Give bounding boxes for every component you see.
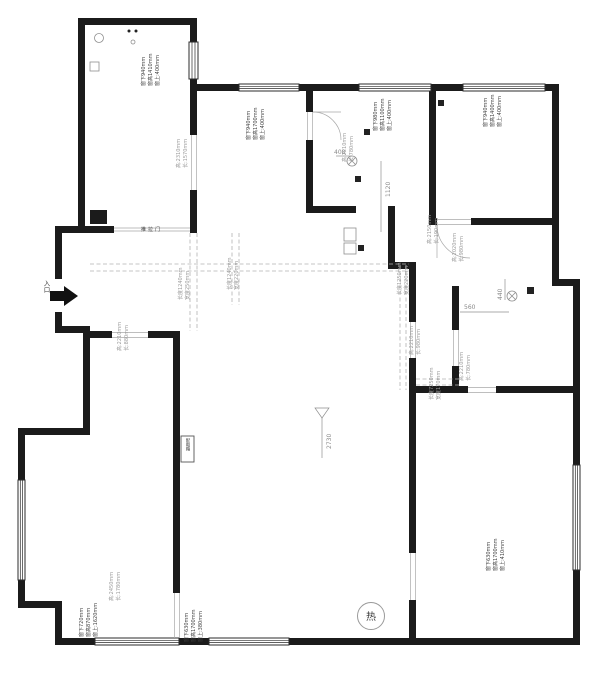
window: [239, 84, 299, 91]
wall-segment: [83, 326, 90, 435]
wall-segment: [18, 428, 90, 435]
window-label: 窗上:400mm: [496, 96, 503, 127]
ceiling-lamp: [95, 34, 104, 43]
wall-segment: [471, 218, 559, 225]
wall-segment: [409, 358, 416, 393]
window-label: 窗上:400mm: [259, 109, 266, 140]
wall-segment: [55, 226, 62, 279]
wall-segment: [409, 600, 416, 638]
beam-label: 宽度220mm: [403, 266, 410, 295]
window-label: 窗上:400mm: [386, 100, 393, 131]
wall-segment: [306, 91, 313, 112]
opening-label: 高:2450mm: [108, 572, 115, 601]
opening-label: 高:2020mm: [451, 233, 458, 262]
window-label: 窗下940mm: [482, 98, 489, 127]
opening-label: 长:1570mm: [182, 139, 189, 168]
window-label: 窗高1400mm: [489, 94, 496, 127]
window-label: 窗高870mm: [85, 608, 92, 637]
pipe-riser: [355, 176, 361, 182]
wall-fixture: [90, 62, 99, 71]
window-label: 窗高1700mm: [190, 609, 197, 642]
opening-label: 长:980mm: [415, 329, 422, 355]
opening-label: 高:2210mm: [116, 322, 123, 351]
sliding-door-label: 推拉门: [141, 226, 162, 233]
window-label: 窗上:410mm: [499, 540, 506, 571]
window-label: 窗下940mm: [245, 111, 252, 140]
opening-label: 长:780mm: [348, 136, 355, 162]
opening-label: 高:2210mm: [408, 326, 415, 355]
wall-segment: [306, 140, 313, 213]
window: [573, 465, 580, 570]
wall-segment: [409, 393, 416, 553]
dim-value: 408: [334, 149, 346, 156]
window: [463, 84, 545, 91]
wall-segment: [496, 386, 580, 393]
wall-segment: [452, 366, 459, 393]
beam-label: 宽度220mm: [233, 261, 240, 290]
wall-segment: [289, 638, 580, 645]
wall-segment: [431, 84, 463, 91]
floor-plan-drawing: 窗上:400mm 窗高1410mm 窗下940mm 窗上:400mm 窗高170…: [0, 0, 600, 687]
opening-label: 长:1780mm: [115, 572, 122, 601]
wall-segment: [173, 331, 180, 593]
pipe-riser: [358, 245, 364, 251]
level-marker: [315, 408, 329, 458]
wall-segment: [452, 286, 459, 330]
pipe-riser: [364, 129, 370, 135]
window-label: 窗高1410mm: [147, 53, 154, 86]
window-label: 窗上:380mm: [197, 611, 204, 642]
window-label: 窗下940mm: [140, 57, 147, 86]
window: [189, 42, 198, 79]
window-label: 窗下630mm: [183, 613, 190, 642]
window-label: 窗高1700mm: [492, 538, 499, 571]
opening-label: 长:880mm: [123, 325, 130, 351]
beam-label: 宽度250mm: [184, 271, 191, 300]
window: [209, 638, 289, 645]
opening-label: 长:980mm: [458, 236, 465, 262]
beam-label: 长度1240mm: [177, 267, 184, 300]
opening-label: 高:2150mm: [426, 215, 433, 244]
wall-segment: [190, 18, 197, 42]
opening-label: 长:190mm: [433, 218, 440, 244]
beam-label: 宽度170mm: [435, 371, 442, 400]
dim-value: 1120: [385, 182, 392, 197]
wall-segment: [573, 279, 580, 645]
opening-label: 高:2210mm: [341, 133, 348, 162]
heater-label: 热: [366, 610, 376, 623]
wall-segment: [429, 91, 436, 225]
window: [359, 84, 431, 91]
beam-label: 长度7250mm: [428, 367, 435, 400]
spot-dot: [128, 30, 131, 33]
dim-value: 560: [464, 304, 476, 311]
window-label: 窗上:400mm: [154, 55, 161, 86]
entrance-label: 入口: [42, 280, 50, 293]
spot-dot: [135, 30, 138, 33]
door-swing: [313, 112, 341, 140]
dim-value: 440: [497, 288, 504, 300]
wall-segment: [78, 18, 85, 233]
wall-segment: [388, 206, 395, 269]
window-label: 窗下980mm: [372, 102, 379, 131]
wall-segment: [409, 262, 416, 322]
wall-segment: [55, 601, 62, 645]
entrance-arrow-icon: [50, 286, 78, 306]
labels: 窗上:400mm 窗高1410mm 窗下940mm 窗上:400mm 窗高170…: [42, 53, 506, 642]
ceiling-height-value: 2730: [326, 434, 333, 449]
beam-lines: [90, 233, 460, 390]
wall-segment: [552, 84, 559, 286]
wall-segment: [416, 386, 468, 393]
pipe-riser: [438, 100, 444, 106]
wall-segment: [190, 190, 197, 233]
opening-label: 高:2210mm: [458, 352, 465, 381]
spot-dot: [131, 40, 135, 44]
bath-fixture: [344, 243, 356, 254]
opening-label: 高:2310mm: [175, 139, 182, 168]
wall-segment: [90, 331, 112, 338]
window: [18, 480, 25, 580]
window-label: 窗下720mm: [78, 608, 85, 637]
window: [95, 638, 179, 645]
wall-segment: [306, 206, 356, 213]
distribution-box-label: 配电箱: [185, 438, 190, 453]
wall-segment: [78, 18, 197, 25]
window-label: 窗下630mm: [485, 542, 492, 571]
opening-label: 长:780mm: [465, 355, 472, 381]
floor-drain: [507, 291, 517, 301]
wall-segment: [18, 428, 25, 480]
window-label: 窗上:1620mm: [92, 603, 99, 637]
beam-label: 长度1240mm: [226, 257, 233, 290]
floor-plan-canvas: 窗上:400mm 窗高1410mm 窗下940mm 窗上:400mm 窗高170…: [0, 0, 600, 687]
wall-segment: [299, 84, 359, 91]
beam-label: 长度1250mm: [396, 262, 403, 295]
window-label: 窗高1700mm: [252, 107, 259, 140]
corner-column: [90, 210, 107, 224]
bath-fixture: [344, 228, 356, 241]
pipe-riser: [527, 287, 534, 294]
wall-segment: [190, 79, 197, 135]
wall-segment: [197, 84, 239, 91]
window-label: 窗高1100mm: [379, 98, 386, 131]
